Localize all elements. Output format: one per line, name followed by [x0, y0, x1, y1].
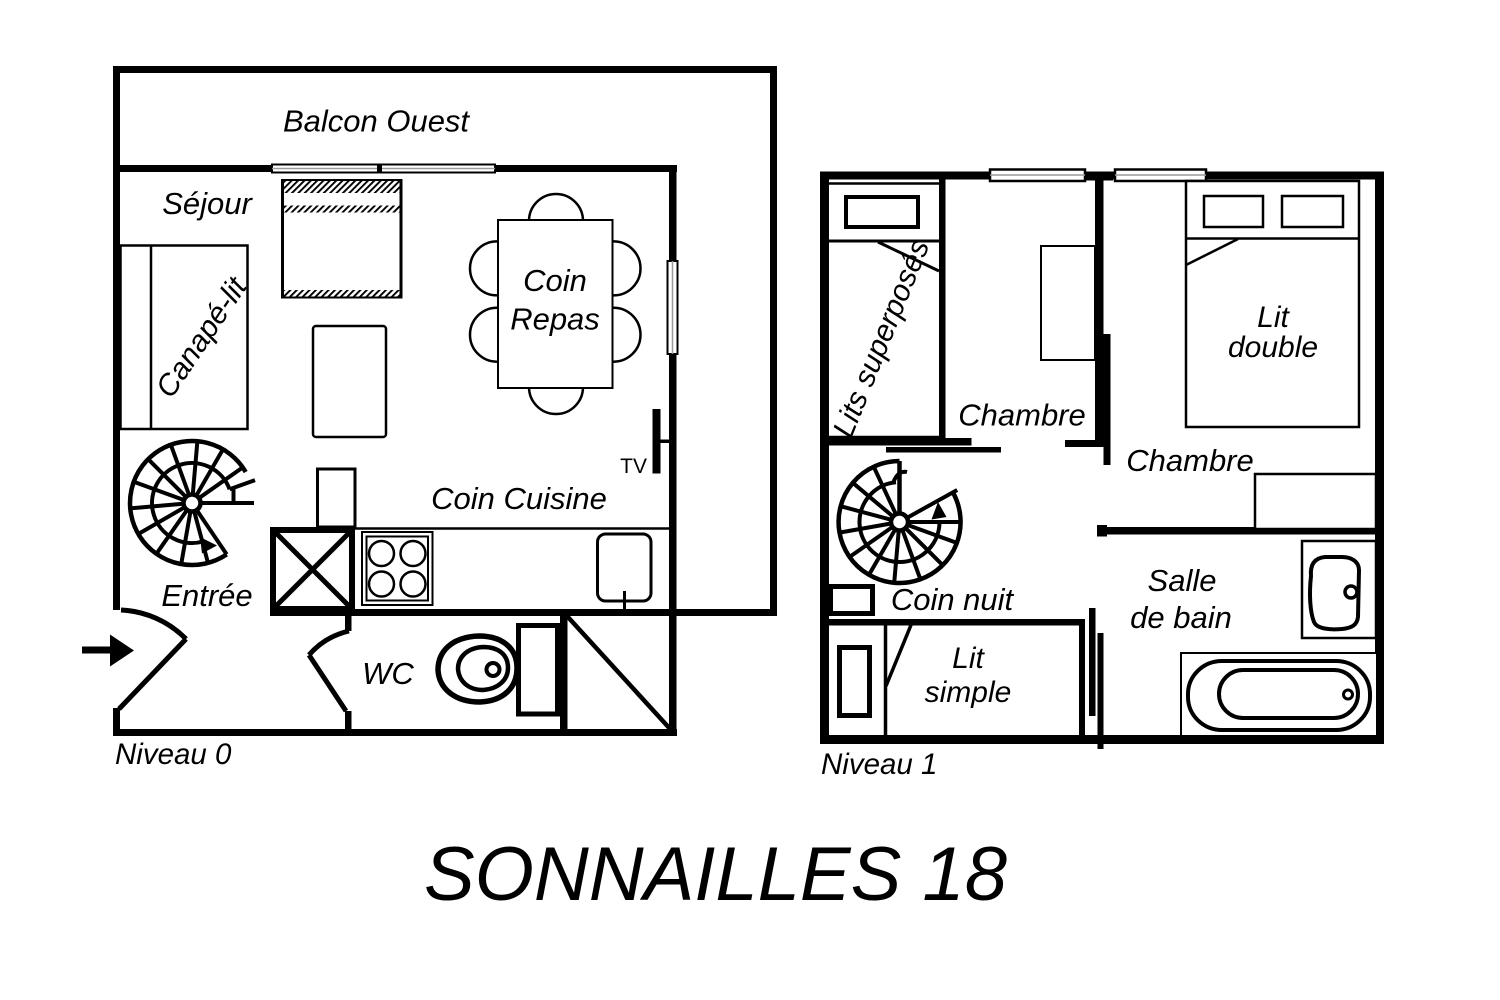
svg-text:simple: simple: [925, 676, 1012, 709]
svg-text:Coin: Coin: [523, 263, 587, 298]
svg-text:Entrée: Entrée: [161, 578, 252, 613]
svg-text:Séjour: Séjour: [162, 186, 253, 221]
svg-text:Chambre: Chambre: [1126, 443, 1254, 478]
svg-text:double: double: [1228, 331, 1318, 364]
svg-text:Salle: Salle: [1148, 563, 1217, 598]
svg-text:SONNAILLES 18: SONNAILLES 18: [424, 832, 1007, 917]
svg-text:WC: WC: [362, 656, 414, 691]
svg-text:Lit: Lit: [952, 642, 985, 675]
svg-text:Niveau 0: Niveau 0: [115, 738, 232, 771]
svg-text:Lit: Lit: [1257, 301, 1290, 334]
svg-text:TV: TV: [620, 455, 647, 478]
svg-text:de bain: de bain: [1130, 600, 1232, 635]
svg-text:Chambre: Chambre: [958, 398, 1086, 433]
svg-text:Repas: Repas: [510, 301, 600, 336]
svg-text:Coin nuit: Coin nuit: [891, 582, 1015, 617]
svg-text:Niveau 1: Niveau 1: [821, 748, 937, 781]
svg-text:Balcon Ouest: Balcon Ouest: [283, 103, 470, 138]
svg-text:Coin Cuisine: Coin Cuisine: [431, 481, 607, 516]
